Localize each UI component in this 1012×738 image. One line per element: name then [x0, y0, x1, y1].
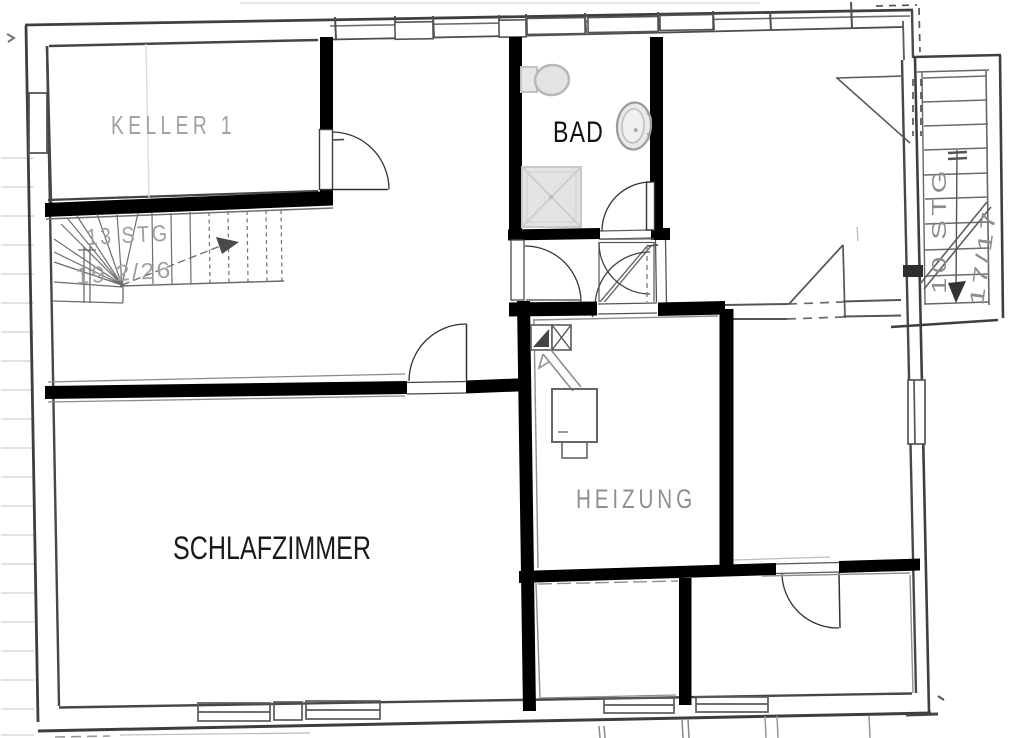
svg-text:HEIZUNG: HEIZUNG [576, 484, 696, 514]
svg-text:13 STG: 13 STG [86, 220, 170, 250]
svg-text:KELLER 1: KELLER 1 [111, 110, 236, 140]
svg-text:SCHLAFZIMMER: SCHLAFZIMMER [173, 530, 371, 566]
svg-text:BAD: BAD [553, 116, 604, 149]
svg-text:10 STG: 10 STG [929, 166, 951, 294]
